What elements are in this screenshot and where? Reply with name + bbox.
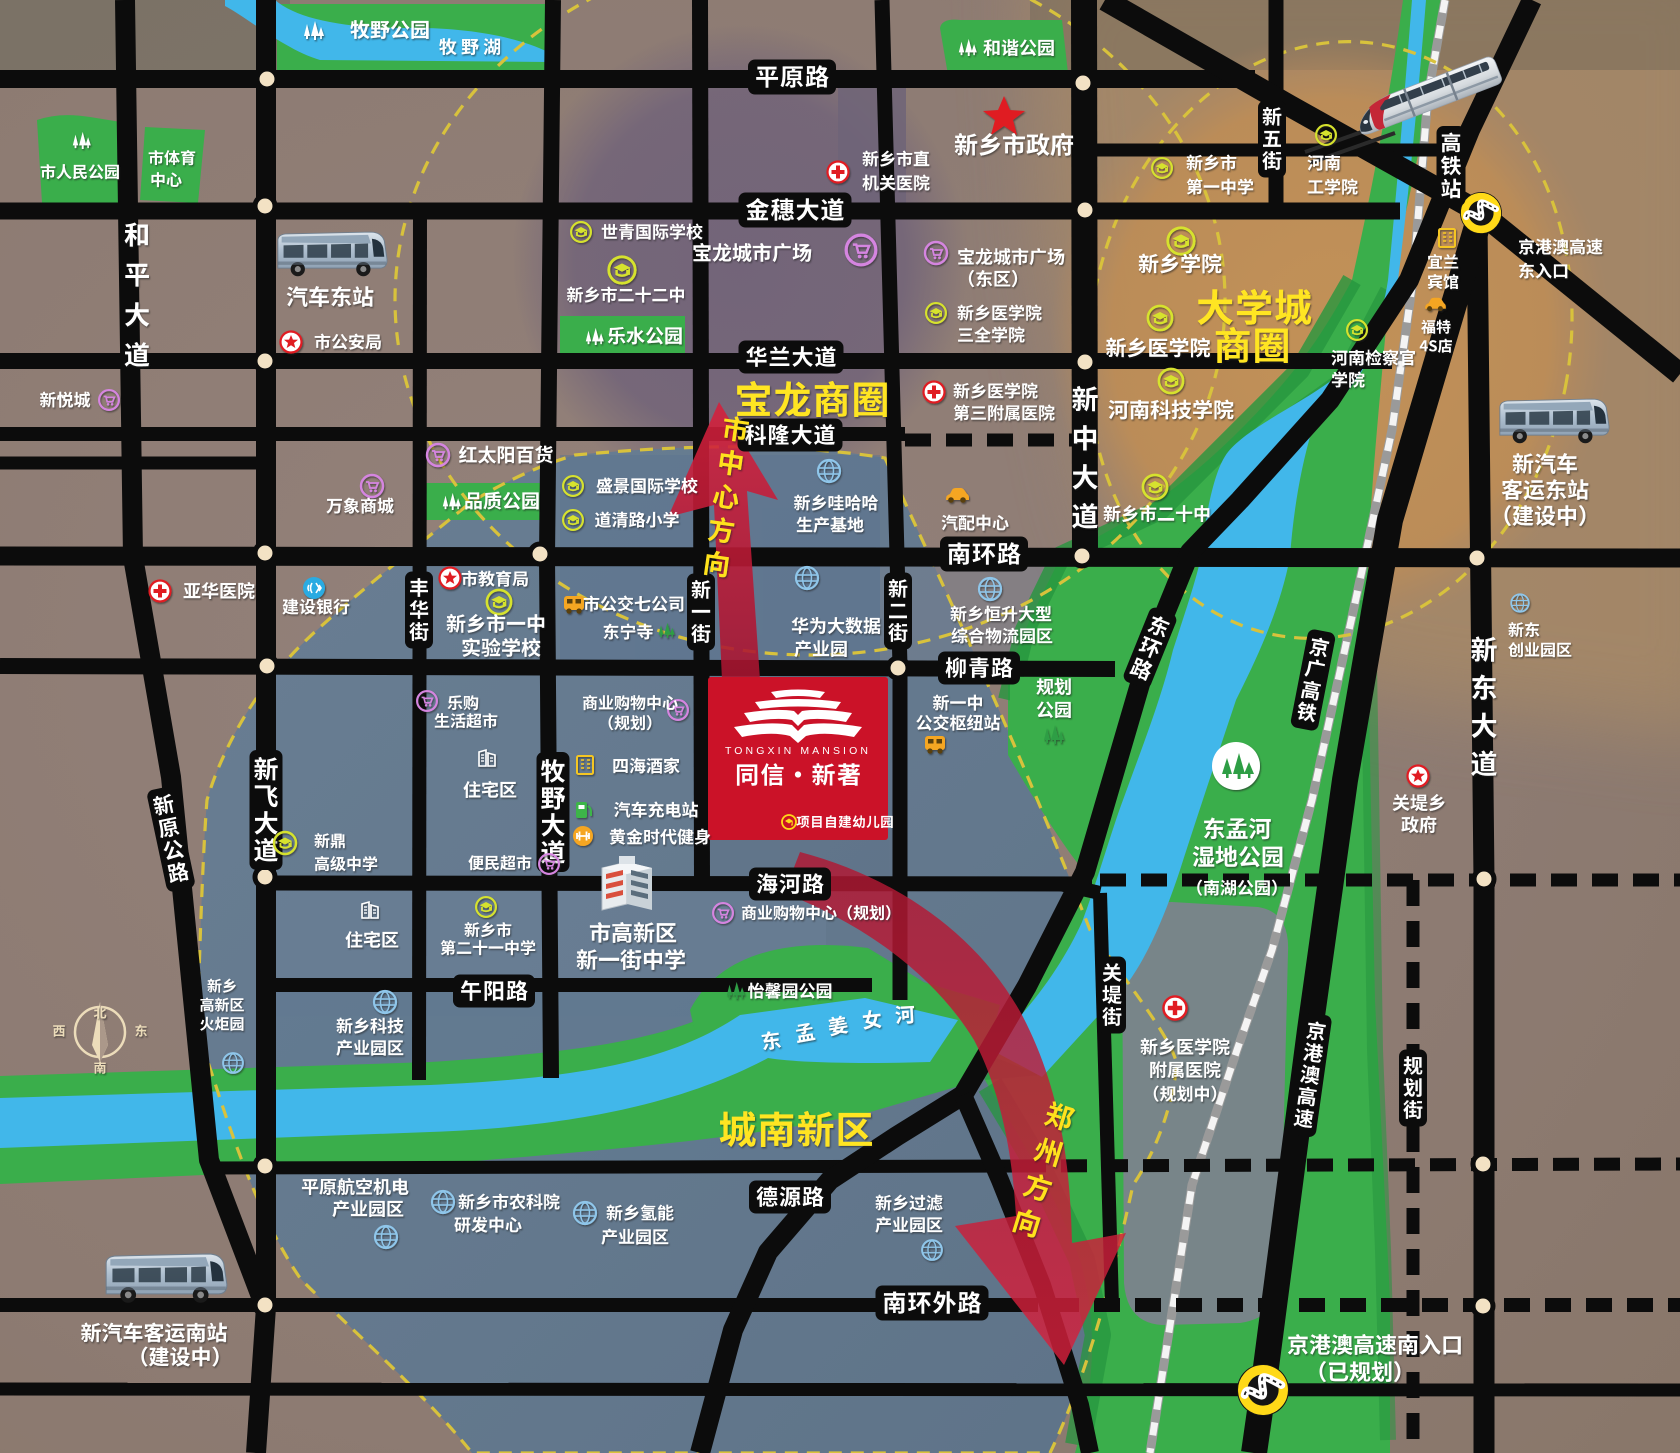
svg-text:TONGXIN MANSION: TONGXIN MANSION [725,745,871,757]
